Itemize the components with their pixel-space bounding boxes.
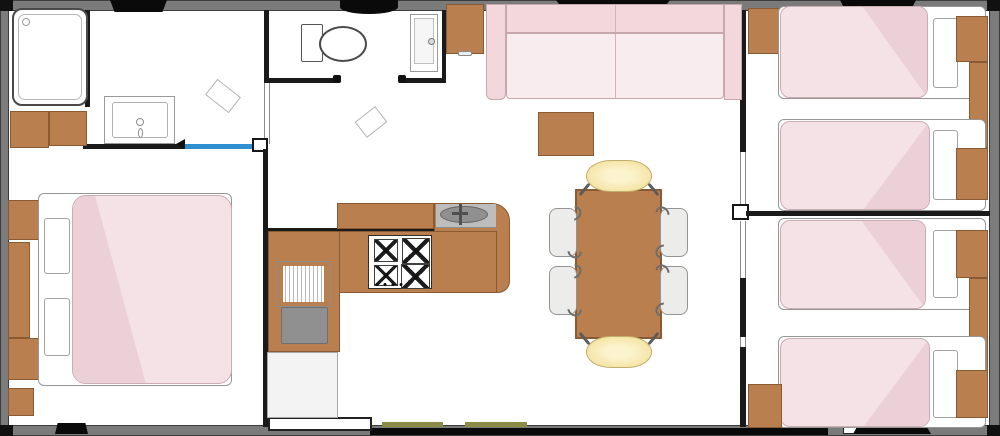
wc-door-jamb (333, 75, 341, 83)
wall-wc-south-left (264, 78, 337, 83)
dresser (8, 242, 30, 338)
entrance-step (465, 422, 527, 427)
nightstand (956, 370, 988, 418)
wall-corner (0, 425, 13, 436)
toilet-bowl (319, 26, 367, 62)
coffee-table (538, 112, 594, 156)
dining-chair (660, 266, 688, 315)
wc-door-jamb (398, 75, 406, 83)
single-bed-duvet (780, 220, 926, 309)
grill-appliance (276, 261, 331, 307)
duvet-fold (781, 339, 929, 426)
wall-bathroom-south (83, 144, 187, 149)
hall-cabinet (446, 4, 484, 54)
bedroom-cabinet (748, 8, 782, 54)
door-slide-arrow (176, 139, 185, 149)
duvet-fold (781, 122, 929, 209)
dining-chair (549, 208, 577, 257)
sink-faucet-handle (452, 212, 468, 215)
dining-table (575, 189, 662, 339)
single-bed-duvet (780, 121, 930, 210)
sliding-door-blue (185, 144, 257, 149)
nightstand (8, 200, 42, 240)
basin-drain (138, 128, 143, 138)
sofa-back (506, 4, 724, 33)
wall-wc-south-right (402, 78, 446, 83)
single-bed-duvet (780, 6, 928, 98)
pillow (44, 298, 70, 356)
hob-burner (402, 238, 430, 264)
bathroom-cabinet (10, 111, 49, 148)
wall-bedrooms-3 (740, 347, 746, 427)
dining-bench (586, 160, 652, 192)
window-top-bathroom (110, 0, 167, 12)
wall-twin-divider (746, 211, 990, 216)
hob-burner (374, 239, 398, 262)
sofa-arm-left (486, 4, 506, 100)
wall-corner (987, 425, 1000, 436)
fridge (267, 352, 338, 418)
bedroom-cabinet (8, 388, 34, 416)
single-bed-duvet (780, 338, 930, 427)
dining-chair (549, 266, 577, 315)
kitchen-basin (281, 307, 328, 344)
floor-plan (0, 0, 1000, 436)
kitchen-bar-counter (337, 203, 434, 229)
nightstand (956, 230, 988, 278)
doorway-bathroom (264, 82, 270, 144)
cabinet-handle (458, 51, 472, 56)
nightstand (956, 148, 988, 200)
duvet-fold (781, 7, 927, 97)
double-bed-duvet (72, 195, 232, 384)
wall-joint (740, 337, 746, 347)
pillow (933, 230, 958, 298)
shower-drain (22, 18, 30, 26)
wall-corner (987, 0, 1000, 11)
entrance-door-track (370, 428, 828, 435)
nightstand (8, 338, 42, 380)
duvet-fold (73, 196, 231, 383)
entrance-step (382, 422, 443, 427)
hob-burner (401, 264, 430, 289)
wall-bedrooms-2 (740, 278, 746, 337)
hob-knobs (373, 282, 403, 287)
entry-step-bench (268, 417, 372, 431)
pillow (933, 350, 958, 418)
bathroom-cabinet (49, 111, 87, 146)
pillow (44, 218, 70, 274)
wc-faucet (428, 38, 435, 45)
dining-bench (586, 336, 652, 368)
wall-wc-left (264, 10, 269, 82)
hall-shelf (355, 106, 388, 138)
wall-corner (0, 0, 13, 11)
pillow (933, 18, 958, 88)
basin-faucet (136, 118, 144, 126)
window-bottom-master (55, 423, 88, 434)
sofa-seats (506, 33, 724, 99)
dining-chair (660, 208, 688, 257)
sofa-arm-right (724, 4, 742, 100)
doorway-twin-bottom (740, 221, 746, 278)
doorway-twin-top (740, 152, 746, 206)
bathroom-shelf (205, 79, 241, 113)
outer-wall-right (989, 0, 1000, 436)
roof-vent-wc (340, 0, 398, 14)
duvet-fold (781, 221, 925, 308)
pillow (933, 130, 958, 200)
bedroom-cabinet (748, 384, 782, 428)
nightstand (956, 16, 988, 62)
